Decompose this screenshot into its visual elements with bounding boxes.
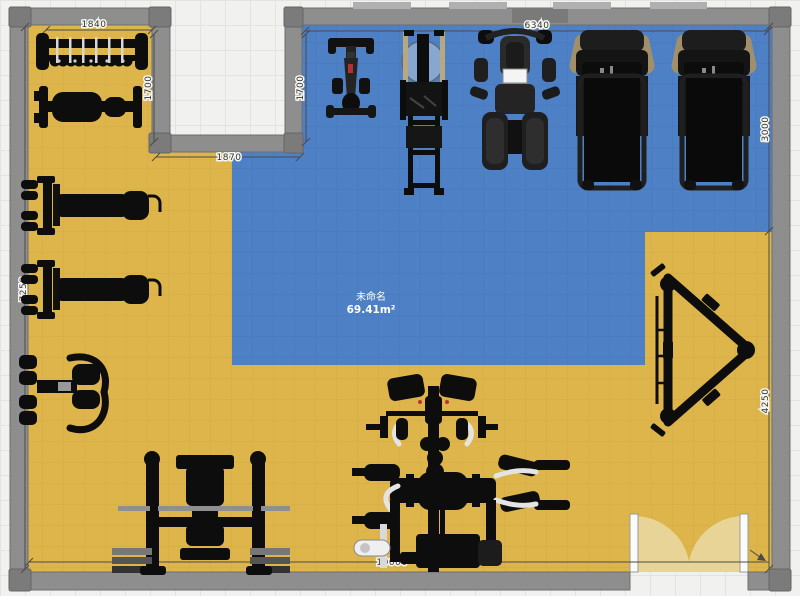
svg-text:1870: 1870 (217, 153, 242, 163)
wall-corner (769, 569, 791, 591)
wall-bottom-left[interactable] (10, 572, 630, 590)
svg-text:3000: 3000 (761, 117, 771, 142)
equipment-treadmill-2[interactable] (670, 30, 758, 190)
wall-corner (284, 7, 303, 27)
equipment-treadmill-1[interactable] (568, 30, 656, 190)
wall-corner (284, 133, 303, 153)
wall-corner (149, 7, 171, 27)
wall-tab (449, 2, 507, 9)
svg-text:1700: 1700 (296, 76, 306, 101)
planner-canvas[interactable]: 1840 1700 1870 6340 1700 3000 (0, 0, 800, 596)
wall-tab (553, 2, 611, 9)
wall-corner (9, 569, 31, 591)
zone-area-label: 69.41m² (347, 304, 396, 316)
wall-notch-bottom[interactable] (152, 135, 302, 152)
door-leaf-left[interactable] (630, 514, 638, 572)
wall-tab (353, 2, 411, 9)
wall-notch-left[interactable] (152, 8, 170, 152)
svg-text:1840: 1840 (82, 20, 107, 30)
svg-text:4250: 4250 (761, 389, 771, 414)
svg-text:1700: 1700 (144, 76, 154, 101)
door-leaf-right[interactable] (740, 514, 748, 572)
wall-right[interactable] (772, 8, 790, 590)
wall-tab (650, 2, 707, 9)
zone-name-label: 未命名 (356, 290, 386, 303)
